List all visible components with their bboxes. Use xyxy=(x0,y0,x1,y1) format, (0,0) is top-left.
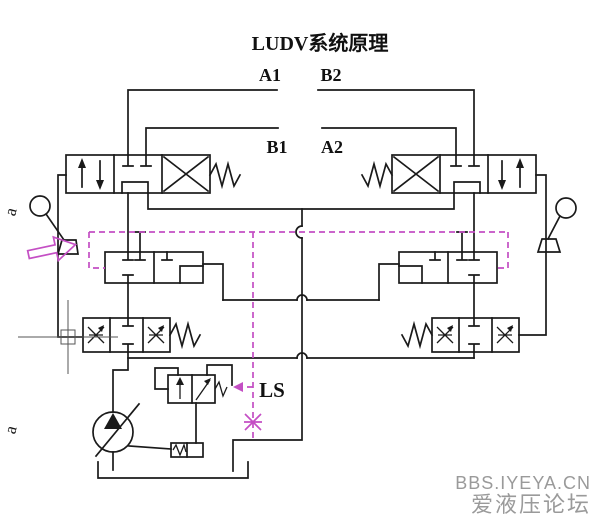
arrow-down-head xyxy=(498,180,506,190)
port-label-a2: A2 xyxy=(321,137,343,157)
ls-annotation xyxy=(26,232,508,440)
dcv-right-blocked-ports xyxy=(451,155,479,166)
pipe-tank-gallery xyxy=(148,193,454,209)
lever-shaft xyxy=(46,214,64,240)
pipe-pump-to-piston xyxy=(129,446,171,449)
pipe-left-bus xyxy=(58,175,83,337)
spring-icon xyxy=(362,164,392,186)
ls-regulator-valve xyxy=(168,375,227,403)
comp-right-flow-path xyxy=(399,266,422,283)
tank-symbol xyxy=(98,462,248,478)
compensator-left xyxy=(105,252,203,283)
stroking-piston xyxy=(171,443,203,457)
ls-dashed-right-drop xyxy=(497,232,508,268)
ls-label: LS xyxy=(259,378,285,402)
diagram-title: LUDV系统原理 xyxy=(252,31,389,55)
dcv-left-body xyxy=(66,155,210,193)
comp-left-top-blocked xyxy=(123,252,145,260)
dcv-left-blocked-ports xyxy=(123,155,151,166)
ludv-schematic: LUDV系统原理 A1 B2 B1 A2 LS a a BBS.IYEYA.CN… xyxy=(0,0,600,524)
section-label-a-top: a xyxy=(0,205,20,218)
arrow-up-head xyxy=(516,158,524,168)
comp-left-flow-path xyxy=(180,266,203,283)
port-label-a1: A1 xyxy=(259,65,281,85)
comp-left-top-blocked2 xyxy=(162,252,172,260)
crosshair-lines-icon xyxy=(18,300,118,374)
compensator-right xyxy=(399,252,497,283)
annotation-arrow-outline-icon xyxy=(26,233,78,266)
throttle-left-dividers xyxy=(110,318,143,352)
dcv-left-bottom-notch xyxy=(122,182,148,193)
tank xyxy=(98,462,248,478)
port-label-b2: B2 xyxy=(320,65,341,85)
arrow-up-head xyxy=(78,158,86,168)
comp-left-bottom-blocked xyxy=(123,275,133,283)
section-label-a-bottom: a xyxy=(0,423,20,436)
spring-icon xyxy=(402,324,432,346)
arrow-up-head xyxy=(176,377,184,385)
dcv-left xyxy=(66,155,240,193)
lever-right xyxy=(538,198,576,252)
throttle-valve-right xyxy=(402,318,519,352)
pipe-right-bus xyxy=(519,175,546,335)
watermark-url: BBS.IYEYA.CN xyxy=(455,473,591,493)
watermark-forum-name: 爱液压论坛 xyxy=(471,492,591,517)
lever-knob-icon xyxy=(30,196,50,216)
pipe-comp-out-left xyxy=(203,264,223,300)
throttle-valve-left xyxy=(83,318,200,352)
pipe-return-bus-lower xyxy=(233,238,302,471)
spring-icon xyxy=(210,164,240,186)
port-label-b1: B1 xyxy=(266,137,287,157)
comp-right-top-blocked2 xyxy=(430,252,440,260)
arrow-head xyxy=(204,378,211,385)
dcv-right-cross-position xyxy=(394,157,438,191)
pipe-pilot-tap-left xyxy=(135,232,145,252)
comp-right-top-blocked xyxy=(457,252,479,260)
pipe-pilot-tap-right xyxy=(457,232,467,252)
lever-pivot xyxy=(538,239,560,252)
pipe-pump-outlet xyxy=(113,352,128,412)
spring-icon xyxy=(173,445,186,455)
lever-knob-icon xyxy=(556,198,576,218)
dcv-right xyxy=(362,155,536,193)
arrow-down-head xyxy=(96,180,104,190)
ls-arrow-head xyxy=(233,382,243,392)
ls-dashed-left-drop xyxy=(89,232,105,268)
dcv-right-body xyxy=(392,155,536,193)
throttle-right-blocked xyxy=(469,318,479,352)
spring-icon xyxy=(170,324,200,346)
cad-crosshair-cursor[interactable] xyxy=(18,300,118,374)
comp-right-bottom-blocked xyxy=(469,275,479,283)
dcv-right-bottom-notch xyxy=(454,182,480,193)
throttle-left-blocked xyxy=(123,318,133,352)
pump xyxy=(93,404,139,456)
dcv-left-cross-position xyxy=(164,157,208,191)
throttle-right-dividers xyxy=(459,318,492,352)
spring-icon xyxy=(215,382,227,396)
pipe-a1 xyxy=(128,90,277,155)
lever-shaft xyxy=(548,216,560,239)
hydraulic-schematic-page: LUDV系统原理 A1 B2 B1 A2 LS a a BBS.IYEYA.CN… xyxy=(0,0,600,524)
pipe-b1 xyxy=(146,128,278,155)
pipe-comp-out-right xyxy=(379,264,399,300)
pipe-ls-pilot-jog xyxy=(155,368,178,389)
